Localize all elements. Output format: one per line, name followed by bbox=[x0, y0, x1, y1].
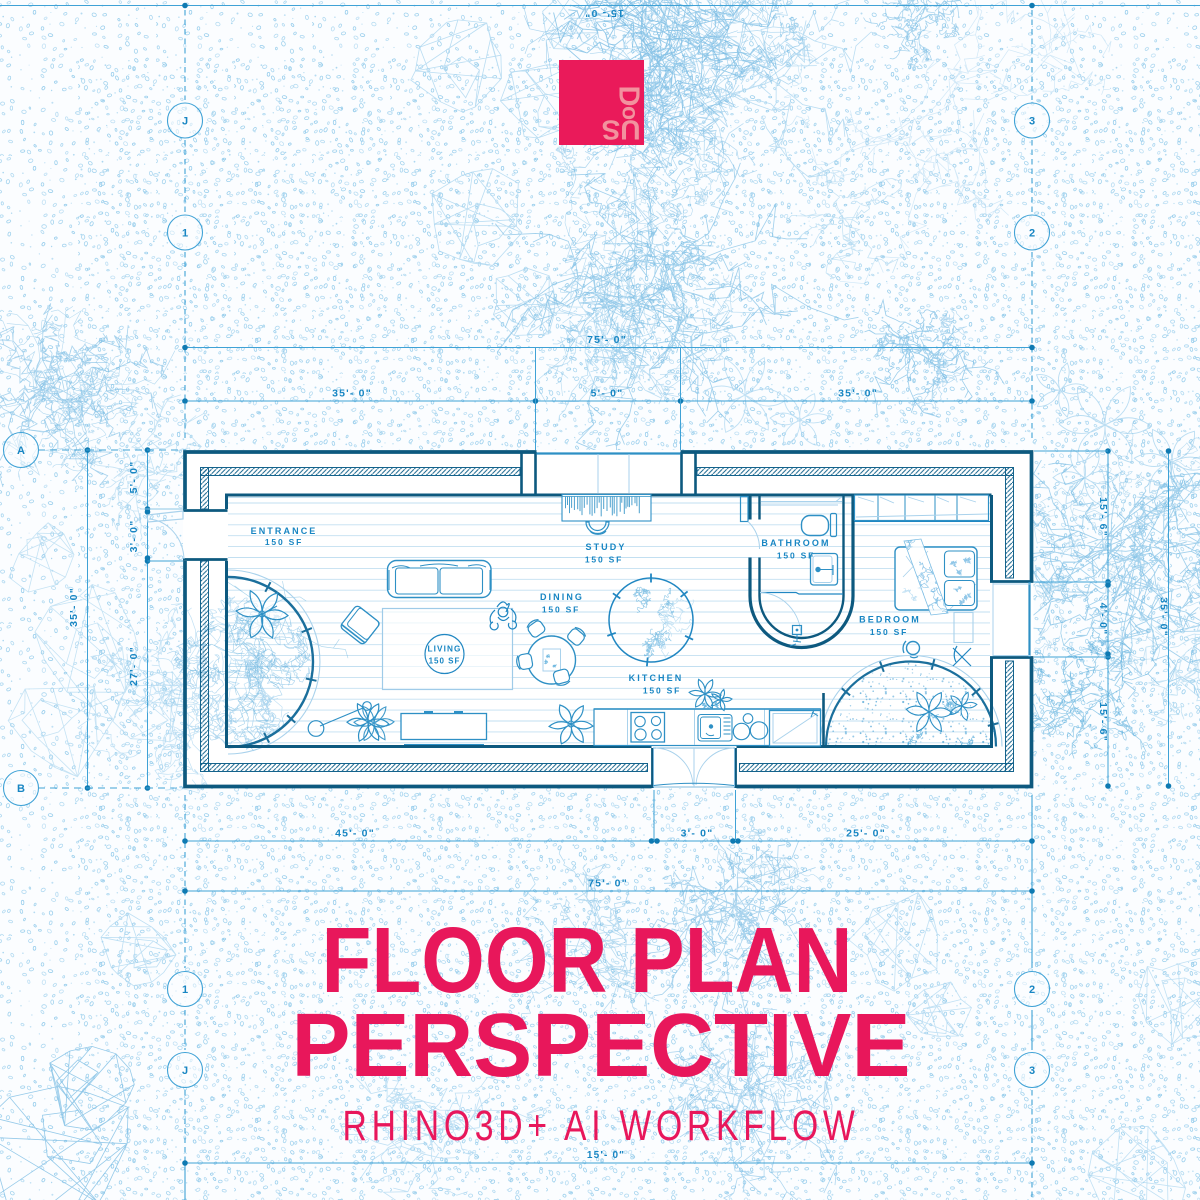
svg-text:A: A bbox=[17, 445, 25, 457]
svg-text:STUDY: STUDY bbox=[585, 542, 626, 552]
svg-text:27'- 0": 27'- 0" bbox=[128, 646, 140, 686]
svg-text:150 SF: 150 SF bbox=[777, 551, 815, 561]
svg-text:2: 2 bbox=[1029, 227, 1035, 239]
svg-text:25'- 0": 25'- 0" bbox=[846, 828, 886, 840]
svg-text:3'- 0": 3'- 0" bbox=[681, 828, 714, 840]
svg-text:35'- 0": 35'- 0" bbox=[332, 388, 372, 400]
svg-text:3'- 0": 3'- 0" bbox=[128, 520, 140, 553]
svg-text:15'- 0": 15'- 0" bbox=[584, 7, 624, 19]
svg-text:ENTRANCE: ENTRANCE bbox=[251, 526, 318, 536]
svg-text:LIVING: LIVING bbox=[428, 645, 462, 654]
svg-text:35'- 0": 35'- 0" bbox=[838, 388, 878, 400]
svg-text:BATHROOM: BATHROOM bbox=[761, 538, 830, 548]
svg-text:1: 1 bbox=[182, 984, 188, 996]
svg-text:KITCHEN: KITCHEN bbox=[629, 673, 684, 683]
svg-text:3: 3 bbox=[1029, 1065, 1035, 1077]
svg-text:B: B bbox=[17, 783, 25, 795]
svg-text:US: US bbox=[602, 115, 641, 146]
svg-text:150 SF: 150 SF bbox=[870, 627, 908, 637]
svg-text:150 SF: 150 SF bbox=[265, 537, 303, 547]
svg-text:J: J bbox=[182, 115, 188, 127]
svg-text:45'- 0": 45'- 0" bbox=[335, 828, 375, 840]
svg-text:RHINO3D+ AI WORKFLOW: RHINO3D+ AI WORKFLOW bbox=[343, 1103, 860, 1150]
svg-text:35'- 0": 35'- 0" bbox=[68, 587, 80, 627]
svg-text:J: J bbox=[182, 1065, 188, 1077]
svg-text:D: D bbox=[613, 86, 645, 107]
svg-text:2: 2 bbox=[1029, 984, 1035, 996]
svg-text:5'- 0": 5'- 0" bbox=[591, 388, 624, 400]
svg-text:35'- 0": 35'- 0" bbox=[1158, 597, 1170, 637]
svg-text:150 SF: 150 SF bbox=[585, 555, 623, 565]
svg-text:PERSPECTIVE: PERSPECTIVE bbox=[292, 996, 911, 1096]
svg-text:75'- 0": 75'- 0" bbox=[587, 334, 627, 346]
svg-text:15'- 0": 15'- 0" bbox=[587, 1150, 625, 1161]
svg-text:BEDROOM: BEDROOM bbox=[859, 615, 921, 625]
svg-text:15'- 6": 15'- 6" bbox=[1097, 497, 1109, 537]
svg-text:4'- 0": 4'- 0" bbox=[1097, 603, 1109, 636]
svg-text:150 SF: 150 SF bbox=[542, 605, 580, 615]
svg-text:3: 3 bbox=[1029, 115, 1035, 127]
svg-text:DINING: DINING bbox=[540, 592, 584, 602]
svg-text:150 SF: 150 SF bbox=[643, 686, 681, 696]
svg-text:15'- 6": 15'- 6" bbox=[1097, 702, 1109, 742]
svg-text:75'- 0": 75'- 0" bbox=[588, 878, 628, 890]
svg-text:150 SF: 150 SF bbox=[429, 657, 461, 666]
svg-text:1: 1 bbox=[182, 227, 188, 239]
svg-text:5'- 0": 5'- 0" bbox=[128, 461, 140, 494]
